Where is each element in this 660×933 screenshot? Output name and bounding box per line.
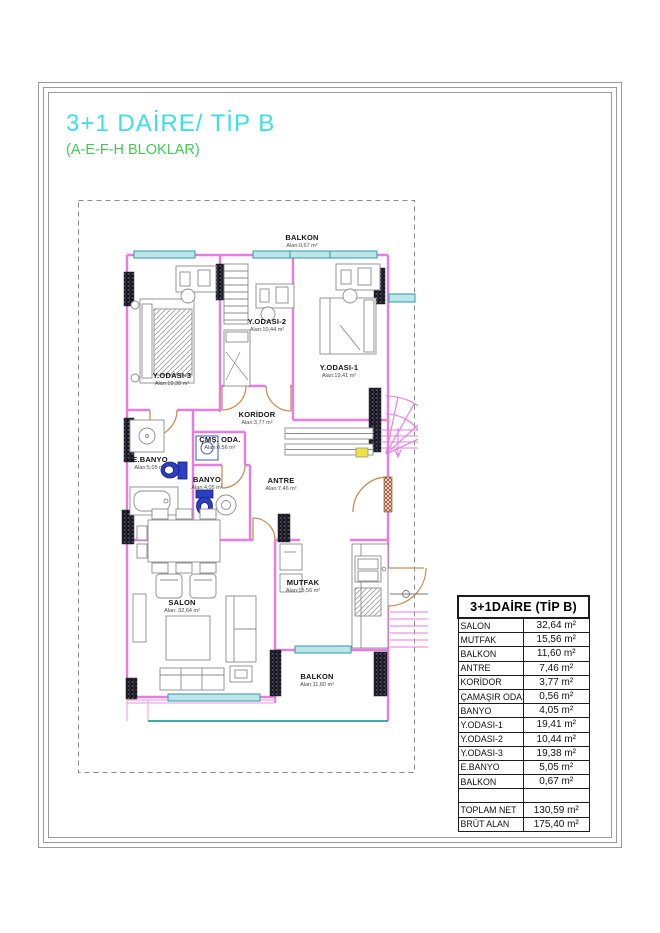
desk-icon — [176, 266, 216, 303]
room-area-cell: 0,67 m² — [524, 775, 590, 789]
total-area-cell: 130,59 m² — [524, 803, 590, 817]
room-name-cell: BALKON — [458, 775, 524, 789]
room-area-cell: 11,60 m² — [524, 647, 590, 661]
washbasin-icon — [130, 420, 164, 452]
coffee-table-icon — [166, 616, 210, 660]
stairs-icon — [382, 396, 444, 457]
table-row: BALKON0,67 m² — [458, 775, 589, 789]
room-area-cell: 4,05 m² — [524, 704, 590, 718]
single-bed-icon — [224, 330, 250, 386]
table-row: Y.ODASI-210,44 m² — [458, 732, 589, 746]
room-name-cell: Y.ODASI-3 — [458, 746, 524, 760]
desk-icon — [336, 264, 380, 303]
room-area-cell: 15,56 m² — [524, 633, 590, 647]
area-table: 3+1DAİRE (TİP B) SALON32,64 m² MUTFAK15,… — [457, 595, 590, 832]
room-name-cell: SALON — [458, 618, 524, 633]
table-row: Y.ODASI-119,41 m² — [458, 718, 589, 732]
total-name-cell: TOPLAM NET — [458, 803, 524, 817]
room-label-salon: SALON Alan: 32,64 m² — [164, 598, 200, 615]
table-row: BANYO4,05 m² — [458, 704, 589, 718]
room-label-balkon-top: BALKON Alan:0,67 m² — [285, 233, 318, 250]
room-area-cell: 7,46 m² — [524, 661, 590, 675]
room-label-mutfak: MUTFAK Alan:15,56 m² — [286, 578, 320, 595]
table-row: E.BANYO5,05 m² — [458, 760, 589, 774]
room-area-cell: 10,44 m² — [524, 732, 590, 746]
room-name-cell: ANTRE — [458, 661, 524, 675]
kitchen-counter-icon — [280, 544, 388, 648]
room-name-cell: BALKON — [458, 647, 524, 661]
exterior-steps-icon — [390, 612, 428, 647]
ladder-icon — [224, 264, 248, 324]
room-area-cell: 32,64 m² — [524, 618, 590, 633]
page-subtitle: (A-E-F-H BLOKLAR) — [66, 142, 200, 158]
table-row: Y.ODASI-319,38 m² — [458, 746, 589, 760]
total-name-cell: BRÜT ALAN — [458, 817, 524, 831]
room-name-cell: KORİDOR — [458, 675, 524, 689]
drawing-sheet: { "title": "3+1 DAİRE/ TİP B", "subtitle… — [0, 0, 660, 933]
room-name-cell: E.BANYO — [458, 760, 524, 774]
page-title: 3+1 DAİRE/ TİP B — [66, 110, 275, 138]
area-table-title: 3+1DAİRE (TİP B) — [458, 596, 589, 618]
sink-icon — [216, 495, 236, 515]
table-row: BALKON11,60 m² — [458, 647, 589, 661]
room-area-cell — [524, 789, 590, 803]
room-label-banyo: BANYO Alan:4,05 m² — [191, 475, 222, 492]
table-total-row: TOPLAM NET130,59 m² — [458, 803, 589, 817]
armchair-icon — [156, 574, 216, 598]
room-name-cell — [458, 789, 524, 803]
table-spacer-row — [458, 789, 589, 803]
room-area-cell: 19,38 m² — [524, 746, 590, 760]
shaft-highlight — [356, 448, 368, 457]
entrance-door-leaf — [384, 477, 392, 512]
room-name-cell: BANYO — [458, 704, 524, 718]
room-area-cell: 0,56 m² — [524, 689, 590, 703]
table-total-row: BRÜT ALAN175,40 m² — [458, 817, 589, 831]
room-name-cell: Y.ODASI-2 — [458, 732, 524, 746]
tv-unit-icon — [133, 594, 146, 642]
room-label-yodasi1: Y.ODASI-1 Alan:19,41 m² — [320, 363, 358, 380]
room-name-cell: ÇAMAŞIR ODASI — [458, 689, 524, 703]
room-name-cell: MUTFAK — [458, 633, 524, 647]
total-area-cell: 175,40 m² — [524, 817, 590, 831]
room-area-cell: 19,41 m² — [524, 718, 590, 732]
dining-table-icon — [137, 509, 220, 573]
bed-icon — [320, 298, 376, 354]
handrail-icon — [390, 591, 428, 598]
room-label-yodasi2: Y.ODASI-2 Alan:10,44 m² — [248, 317, 286, 334]
room-area-cell: 3,77 m² — [524, 675, 590, 689]
room-label-ebanyo: E.BANYO Alan:5,05 m² — [132, 455, 168, 472]
desk-icon — [256, 284, 294, 321]
room-label-antre: ANTRE Alan:7,46 m² — [265, 476, 296, 493]
room-area-cell: 5,05 m² — [524, 760, 590, 774]
table-row: KORİDOR3,77 m² — [458, 675, 589, 689]
room-label-cms-oda: ÇMŞ. ODA. Alan:0,56 m² — [199, 435, 240, 452]
table-row: MUTFAK15,56 m² — [458, 633, 589, 647]
room-name-cell: Y.ODASI-1 — [458, 718, 524, 732]
table-row: ANTRE7,46 m² — [458, 661, 589, 675]
room-label-koridor: KORİDOR Alan:3,77 m² — [239, 410, 276, 427]
room-label-yodasi3: Y.ODASI-3 Alan:19,38 m² — [153, 371, 191, 388]
room-label-balkon-bottom: BALKON Alan:11,60 m² — [300, 672, 334, 689]
balcony-rails — [127, 700, 388, 721]
table-header-row: 3+1DAİRE (TİP B) — [458, 596, 589, 618]
table-row: SALON32,64 m² — [458, 618, 589, 633]
table-row: ÇAMAŞIR ODASI0,56 m² — [458, 689, 589, 703]
